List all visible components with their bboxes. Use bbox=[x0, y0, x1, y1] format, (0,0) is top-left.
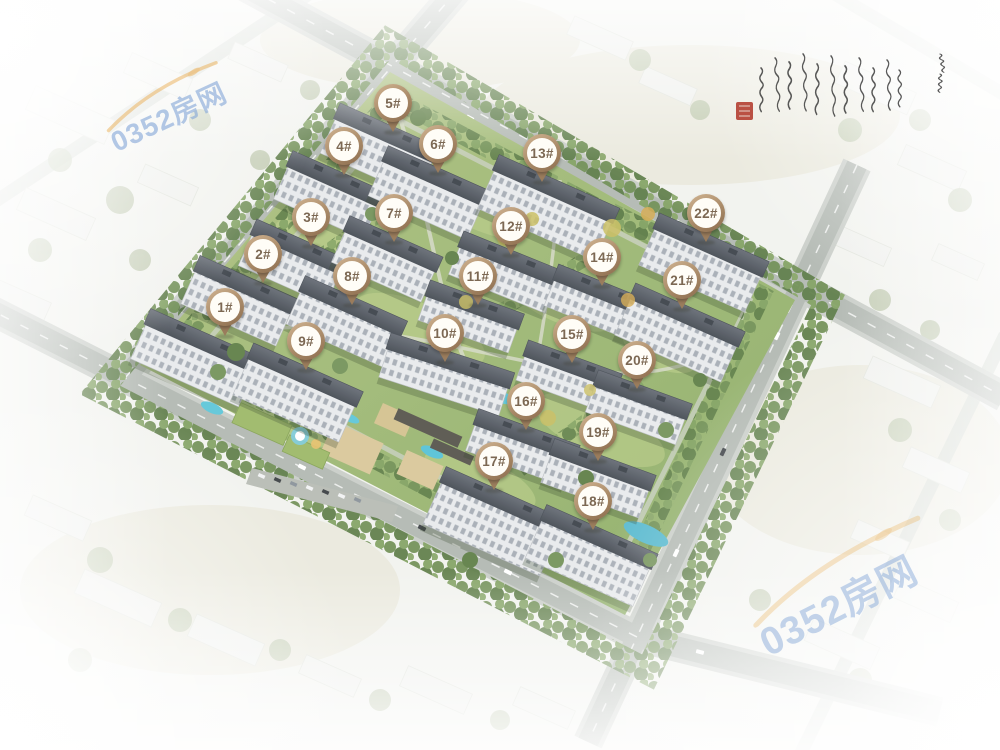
marker-pin-ring: 3# bbox=[292, 198, 330, 236]
building-marker[interactable]: 5# bbox=[374, 84, 412, 138]
building-marker-label: 13# bbox=[527, 138, 557, 168]
building-marker-label: 16# bbox=[511, 386, 541, 416]
building-marker[interactable]: 7# bbox=[375, 194, 413, 248]
marker-pin-ring: 10# bbox=[426, 314, 464, 352]
building-marker-label: 14# bbox=[587, 242, 617, 272]
building-marker-label: 20# bbox=[622, 345, 652, 375]
building-markers-layer: 1# 2# 3# 4# bbox=[0, 0, 1000, 750]
marker-pin-ring: 17# bbox=[475, 442, 513, 480]
marker-pin-ring: 6# bbox=[419, 125, 457, 163]
marker-pin-ring: 1# bbox=[206, 288, 244, 326]
marker-pin-ring: 14# bbox=[583, 238, 621, 276]
building-marker-label: 18# bbox=[578, 486, 608, 516]
building-marker[interactable]: 6# bbox=[419, 125, 457, 179]
building-marker-label: 15# bbox=[557, 319, 587, 349]
marker-pin-ring: 22# bbox=[687, 194, 725, 232]
building-marker-label: 21# bbox=[667, 265, 697, 295]
building-marker-label: 10# bbox=[430, 318, 460, 348]
building-marker[interactable]: 17# bbox=[475, 442, 513, 496]
building-marker-label: 8# bbox=[337, 261, 367, 291]
building-marker[interactable]: 16# bbox=[507, 382, 545, 436]
building-marker[interactable]: 18# bbox=[574, 482, 612, 536]
building-marker-label: 4# bbox=[329, 131, 359, 161]
marker-pin-ring: 9# bbox=[287, 322, 325, 360]
building-marker-label: 9# bbox=[291, 326, 321, 356]
building-marker[interactable]: 19# bbox=[579, 413, 617, 467]
marker-pin-ring: 20# bbox=[618, 341, 656, 379]
building-marker[interactable]: 13# bbox=[523, 134, 561, 188]
marker-pin-ring: 16# bbox=[507, 382, 545, 420]
building-marker[interactable]: 21# bbox=[663, 261, 701, 315]
marker-pin-ring: 8# bbox=[333, 257, 371, 295]
building-marker-label: 11# bbox=[463, 261, 493, 291]
building-marker-label: 22# bbox=[691, 198, 721, 228]
building-marker-label: 19# bbox=[583, 417, 613, 447]
building-marker[interactable]: 4# bbox=[325, 127, 363, 181]
building-marker-label: 3# bbox=[296, 202, 326, 232]
building-marker-label: 12# bbox=[496, 211, 526, 241]
building-marker[interactable]: 15# bbox=[553, 315, 591, 369]
building-marker-label: 5# bbox=[378, 88, 408, 118]
marker-pin-ring: 7# bbox=[375, 194, 413, 232]
building-marker[interactable]: 11# bbox=[459, 257, 497, 311]
building-marker-label: 7# bbox=[379, 198, 409, 228]
building-marker[interactable]: 2# bbox=[244, 235, 282, 289]
marker-pin-ring: 15# bbox=[553, 315, 591, 353]
building-marker[interactable]: 22# bbox=[687, 194, 725, 248]
marker-pin-ring: 21# bbox=[663, 261, 701, 299]
marker-pin-ring: 13# bbox=[523, 134, 561, 172]
marker-pin-ring: 12# bbox=[492, 207, 530, 245]
building-marker[interactable]: 8# bbox=[333, 257, 371, 311]
building-marker-label: 6# bbox=[423, 129, 453, 159]
building-marker[interactable]: 9# bbox=[287, 322, 325, 376]
building-marker[interactable]: 20# bbox=[618, 341, 656, 395]
marker-pin-ring: 19# bbox=[579, 413, 617, 451]
marker-pin-ring: 18# bbox=[574, 482, 612, 520]
building-marker[interactable]: 10# bbox=[426, 314, 464, 368]
building-marker[interactable]: 14# bbox=[583, 238, 621, 292]
building-marker[interactable]: 12# bbox=[492, 207, 530, 261]
marker-pin-ring: 11# bbox=[459, 257, 497, 295]
marker-pin-ring: 4# bbox=[325, 127, 363, 165]
marker-pin-ring: 2# bbox=[244, 235, 282, 273]
building-marker-label: 17# bbox=[479, 446, 509, 476]
building-marker-label: 1# bbox=[210, 292, 240, 322]
building-marker-label: 2# bbox=[248, 239, 278, 269]
masterplan-screenshot: 0352房网 0352房网 1# 2# bbox=[0, 0, 1000, 750]
building-marker[interactable]: 3# bbox=[292, 198, 330, 252]
marker-pin-ring: 5# bbox=[374, 84, 412, 122]
building-marker[interactable]: 1# bbox=[206, 288, 244, 342]
